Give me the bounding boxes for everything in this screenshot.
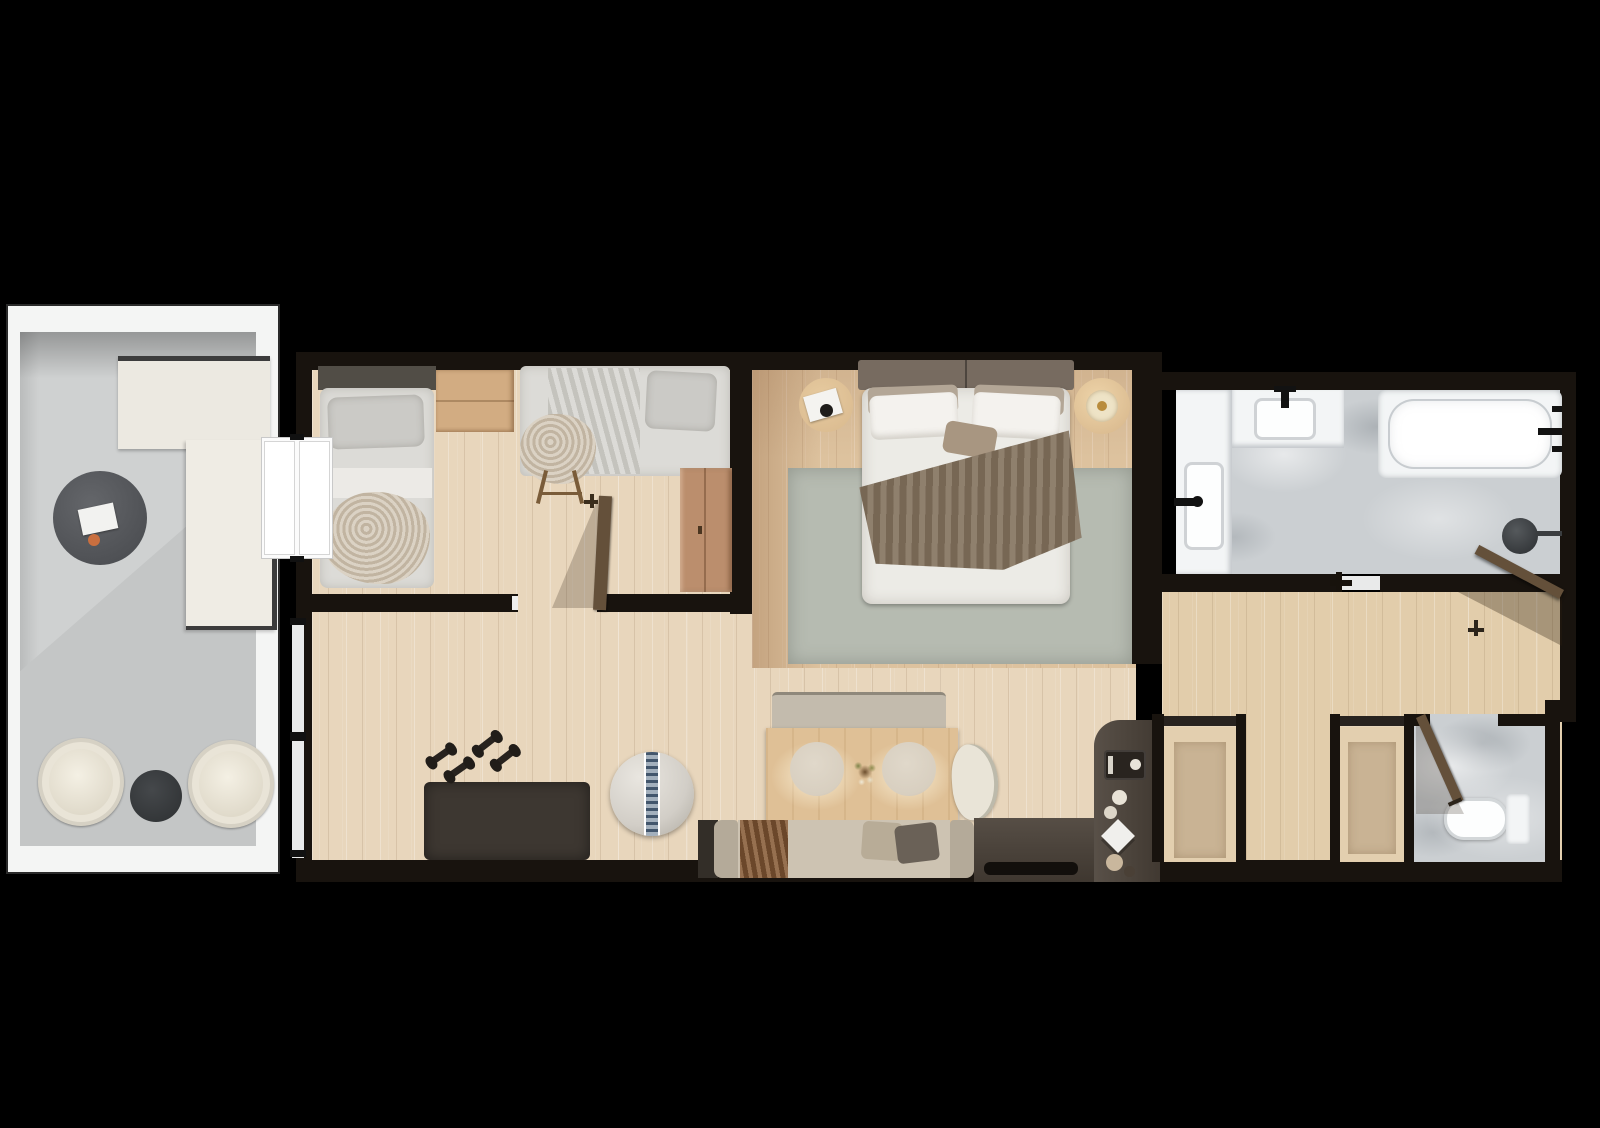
coffee-machine-icon — [1104, 750, 1146, 780]
window-strip-left — [292, 624, 304, 858]
gym-ball — [610, 752, 694, 836]
sofa — [714, 820, 974, 878]
tv-icon — [984, 862, 1078, 875]
valet-leg — [572, 470, 584, 504]
floor-fixture-icon — [1502, 518, 1538, 554]
door-hinge-icon — [290, 556, 304, 562]
closet-niche-left-floor — [1164, 726, 1236, 862]
tub-tap-icon — [1552, 406, 1562, 412]
wall-bedrooms-divider — [730, 352, 752, 614]
closet-niche-right-floor — [1340, 726, 1404, 862]
door-leaf-right — [299, 441, 330, 555]
wall-bedroom-bathroom — [1132, 352, 1162, 664]
wall-bathroom-bottom-left — [1162, 574, 1340, 592]
tub-tap-icon-2 — [1552, 446, 1562, 452]
closet-wall-3 — [1330, 714, 1340, 862]
dresser — [436, 370, 514, 432]
window-tick-bottom — [290, 850, 306, 857]
wardrobe-handle — [698, 526, 702, 534]
candle-wick-icon — [1097, 401, 1107, 411]
wall-right-step — [1545, 700, 1576, 714]
headboard-seam — [965, 360, 967, 390]
closet-wall-2 — [1236, 714, 1246, 862]
centerpiece-icon — [848, 754, 882, 794]
toilet-tank — [1506, 794, 1530, 844]
bathtub-basin — [1388, 399, 1552, 469]
closet-rug — [1174, 742, 1226, 858]
wardrobe-seam — [704, 468, 706, 592]
closet-wall-1 — [1152, 714, 1164, 862]
sofa-throw-icon — [740, 820, 788, 878]
door-hinge-icon — [290, 434, 304, 440]
gym-ball-stripe — [644, 752, 660, 836]
balcony-side-table — [130, 770, 182, 822]
tub-faucet-icon — [1538, 428, 1562, 435]
wall-right-lower — [1545, 700, 1560, 882]
bed-left-headboard — [318, 366, 436, 390]
closet-rug — [1348, 742, 1396, 854]
bed-headboard — [858, 360, 1074, 390]
bathroom-door-handle-bar-icon — [1336, 572, 1342, 592]
window-tick-top — [290, 618, 306, 625]
bathtub — [1378, 390, 1562, 478]
bed-right-pillow — [645, 370, 718, 432]
faucet-left-base-icon — [1192, 496, 1203, 507]
valet-stand — [536, 470, 588, 504]
nightstand-cup-icon — [820, 404, 833, 417]
floor-plan-canvas — [0, 0, 1600, 1128]
fixture-bar-icon — [1536, 531, 1562, 536]
faucet-top-bar-icon — [1274, 386, 1296, 392]
napkin-icon — [1101, 819, 1135, 853]
plate-icon — [790, 742, 844, 796]
kitchen-peninsula — [1094, 720, 1160, 882]
coffee-handle-icon — [1108, 756, 1113, 774]
balcony-armchair-right — [188, 740, 274, 828]
coffee-cup-icon — [1130, 759, 1141, 770]
wall-room2-bottom-left — [296, 594, 518, 612]
balcony-sofa-chaise — [118, 356, 270, 449]
wc-wall-left — [1404, 714, 1414, 862]
balcony-armchair-left — [38, 738, 124, 826]
clothes-rail-icon — [1164, 716, 1236, 726]
jar-icon — [1106, 854, 1123, 871]
exercise-mat — [424, 782, 590, 860]
room2-door-threshold-left — [512, 596, 518, 610]
valet-rung — [542, 492, 582, 495]
sink-left — [1184, 462, 1224, 550]
wc-wall-top — [1498, 714, 1560, 726]
sofa-arm-left — [714, 820, 738, 878]
jar-lid-icon — [1124, 866, 1135, 877]
bed-left-blanket — [324, 492, 430, 584]
dining-bench — [772, 692, 946, 733]
plate-icon — [882, 742, 936, 796]
clothes-rail-icon — [1340, 716, 1404, 726]
entry-door-handle-bar-icon — [1474, 620, 1478, 636]
cup-icon — [1112, 790, 1127, 805]
bed-left-pillow — [327, 394, 425, 449]
dining-table — [766, 728, 958, 824]
wall-top-right — [1152, 372, 1576, 390]
wall-right-upper — [1560, 372, 1576, 722]
door-leaf-left — [264, 441, 295, 555]
cup-icon — [1104, 806, 1117, 819]
double-bed — [858, 360, 1074, 604]
cup-icon — [88, 534, 100, 546]
room2-door-handle-bar — [590, 494, 594, 508]
wall-room2-bottom-right — [597, 594, 752, 612]
wardrobe — [680, 468, 732, 592]
sofa-cushion-dark-icon — [894, 822, 940, 865]
dresser-seam — [436, 400, 514, 402]
valet-leg — [536, 470, 548, 504]
balcony-french-door — [262, 438, 332, 558]
window-tick-mid — [290, 732, 306, 741]
sofa-arm-right — [950, 820, 974, 878]
balcony — [8, 306, 278, 872]
